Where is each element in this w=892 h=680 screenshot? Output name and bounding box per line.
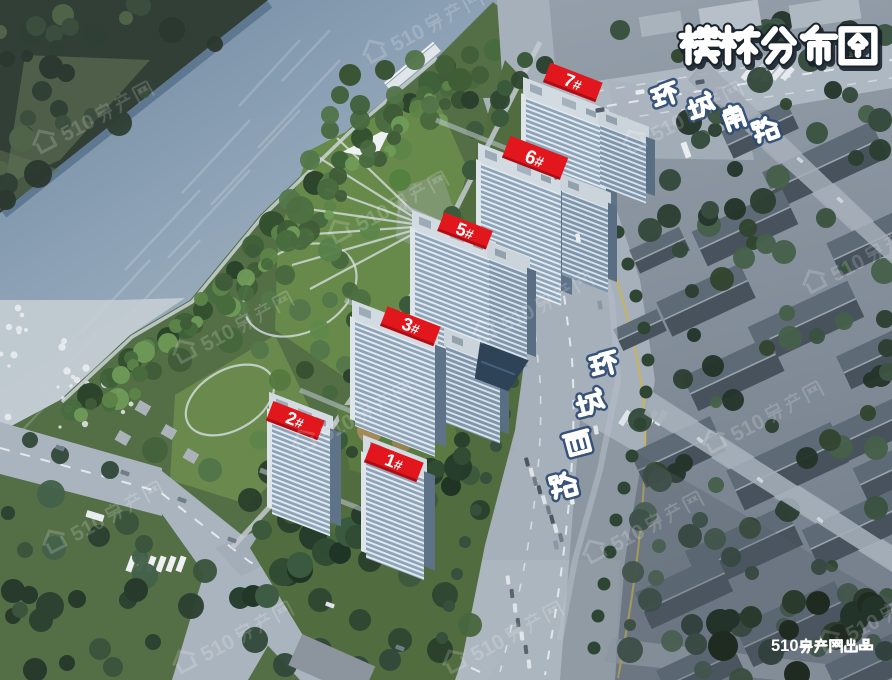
svg-text:510: 510 (771, 637, 799, 655)
